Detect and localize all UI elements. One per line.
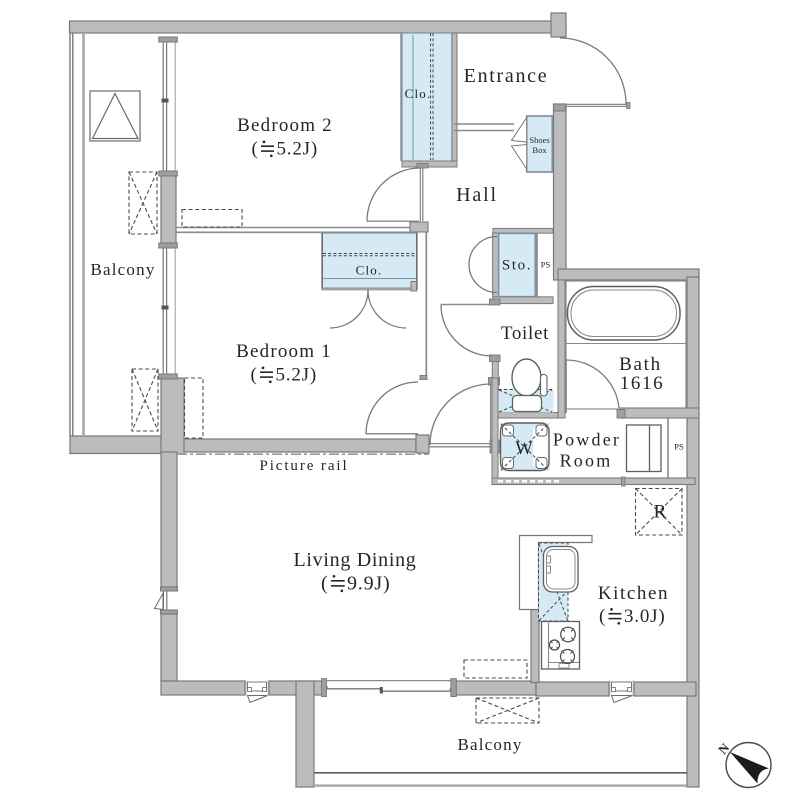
svg-text:PS: PS — [674, 442, 684, 452]
svg-text:Balcony: Balcony — [457, 735, 522, 754]
svg-text:(: ( — [252, 139, 258, 160]
svg-text:Clo.: Clo. — [356, 263, 383, 278]
svg-text:(: ( — [599, 606, 605, 627]
svg-text:(: ( — [251, 365, 257, 386]
svg-text:W: W — [515, 439, 533, 459]
svg-text:Bedroom 2: Bedroom 2 — [237, 115, 333, 136]
svg-text:5.2J): 5.2J) — [277, 139, 318, 160]
svg-text:5.2J): 5.2J) — [276, 365, 317, 386]
svg-text:1616: 1616 — [620, 373, 664, 394]
svg-text:(: ( — [321, 573, 328, 595]
svg-text:Room: Room — [560, 451, 613, 471]
svg-text:Entrance: Entrance — [464, 65, 549, 87]
svg-text:9.9J): 9.9J) — [347, 573, 390, 595]
svg-text:Picture rail: Picture rail — [259, 458, 348, 474]
svg-text:Kitchen: Kitchen — [598, 583, 669, 604]
svg-text:R: R — [654, 502, 667, 523]
svg-text:Sto.: Sto. — [502, 258, 532, 274]
svg-text:Clo.: Clo. — [405, 86, 432, 101]
svg-text:Box: Box — [532, 145, 547, 155]
svg-text:PS: PS — [541, 260, 551, 270]
svg-text:Hall: Hall — [456, 184, 498, 206]
svg-text:Balcony: Balcony — [90, 260, 155, 279]
svg-text:Toilet: Toilet — [501, 323, 549, 344]
svg-text:Bath: Bath — [619, 354, 662, 375]
svg-text:3.0J): 3.0J) — [624, 606, 665, 627]
svg-text:Bedroom 1: Bedroom 1 — [236, 341, 332, 362]
svg-text:Powder: Powder — [553, 430, 621, 450]
svg-text:Living Dining: Living Dining — [294, 549, 417, 571]
svg-text:Shoes: Shoes — [529, 135, 549, 145]
